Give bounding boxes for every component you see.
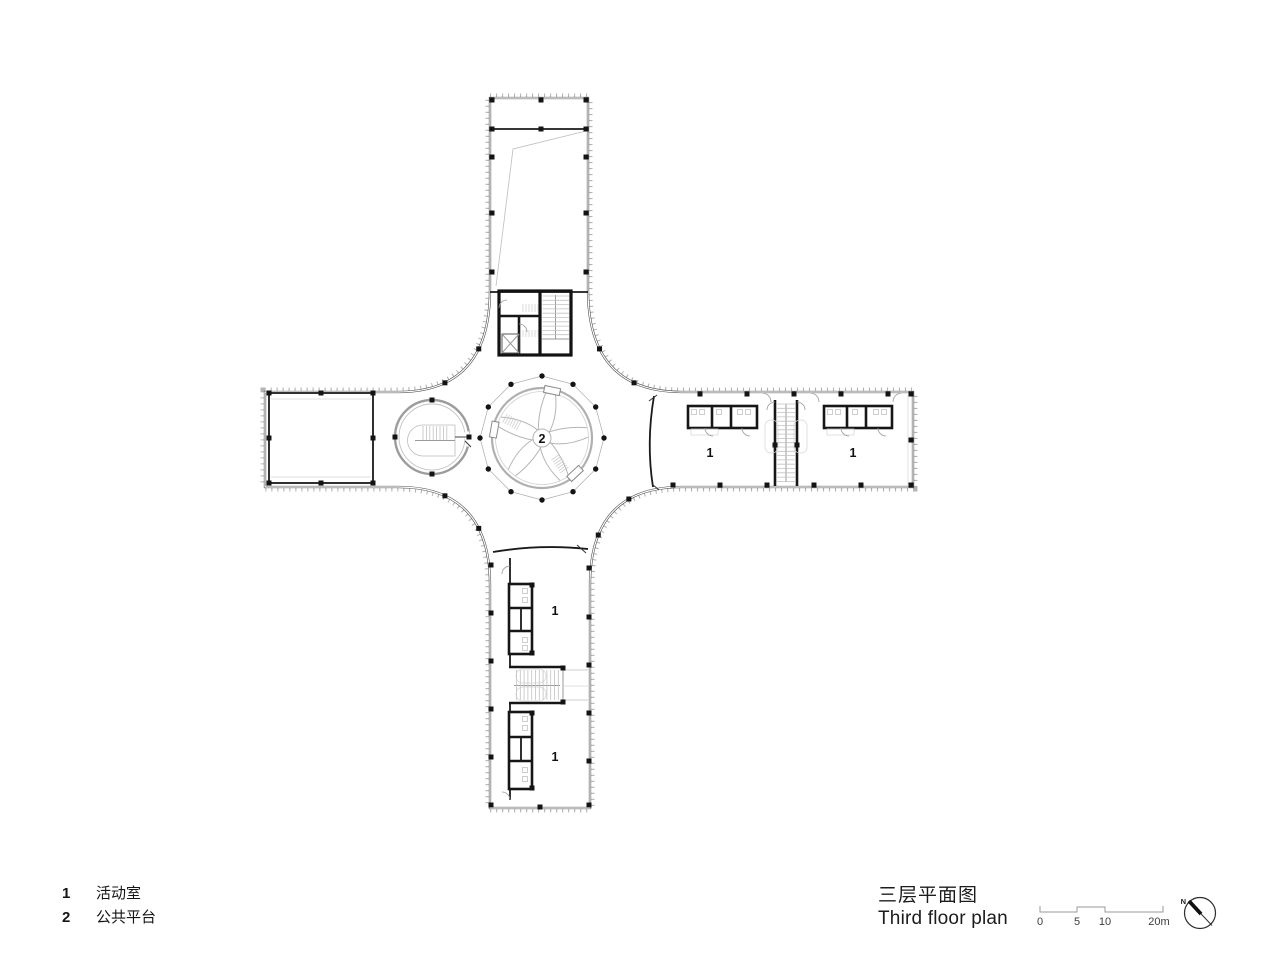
legend-key-number: 1 bbox=[62, 882, 96, 906]
floor-plan-drawing: 2 bbox=[0, 0, 1280, 969]
drawing-title-zh: 三层平面图 bbox=[878, 884, 1008, 907]
room-label-activity: 1 bbox=[850, 446, 857, 460]
room-label-activity: 1 bbox=[707, 446, 714, 460]
room-label-activity: 1 bbox=[552, 750, 559, 764]
room-label-activity: 1 bbox=[552, 604, 559, 618]
drawing-title-en: Third floor plan bbox=[878, 907, 1008, 931]
legend-item: 1 活动室 bbox=[62, 882, 156, 906]
floor-plan-sheet: 2 bbox=[0, 0, 1280, 969]
scale-tick-label: 10 bbox=[1099, 916, 1111, 928]
legend: 1 活动室 2 公共平台 bbox=[62, 882, 156, 930]
legend-item: 2 公共平台 bbox=[62, 906, 156, 930]
north-label: N bbox=[1181, 897, 1186, 906]
legend-key-number: 2 bbox=[62, 906, 96, 930]
room-label-platform: 2 bbox=[539, 432, 546, 446]
legend-key-label: 活动室 bbox=[96, 882, 141, 906]
title-block: 三层平面图 Third floor plan bbox=[878, 884, 1008, 931]
legend-key-label: 公共平台 bbox=[96, 906, 156, 930]
scale-bar: 0 5 10 20m bbox=[1037, 906, 1170, 928]
scale-tick-label: 0 bbox=[1037, 916, 1043, 928]
scale-tick-label: 20m bbox=[1148, 916, 1169, 928]
north-arrow-icon: N bbox=[1181, 897, 1216, 929]
scale-tick-label: 5 bbox=[1074, 916, 1080, 928]
